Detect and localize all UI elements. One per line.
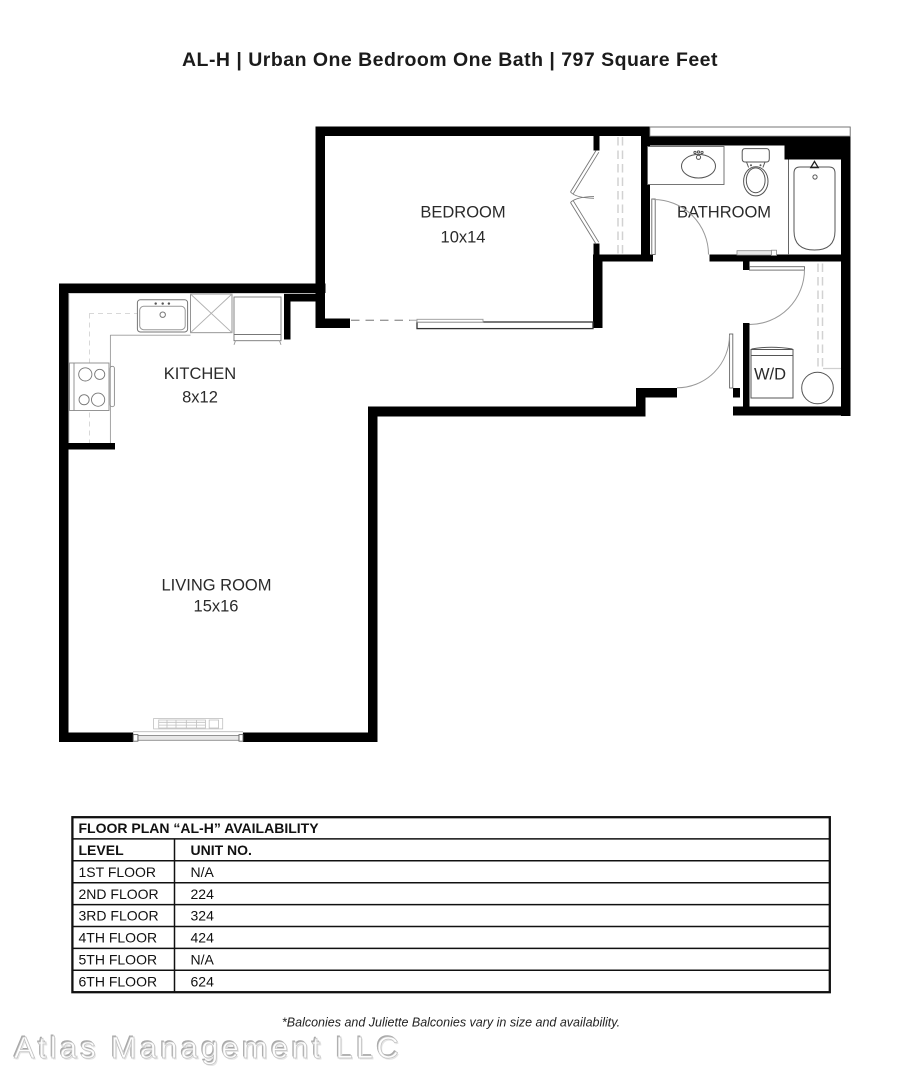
svg-text:2ND FLOOR: 2ND FLOOR (79, 886, 159, 902)
svg-text:*Balconies and Juliette Balcon: *Balconies and Juliette Balconies vary i… (282, 1016, 620, 1030)
svg-text:BATHROOM: BATHROOM (677, 204, 771, 222)
svg-text:FLOOR PLAN “AL-H” AVAILABILITY: FLOOR PLAN “AL-H” AVAILABILITY (79, 820, 320, 836)
svg-text:LEVEL: LEVEL (79, 842, 125, 858)
svg-text:624: 624 (191, 973, 215, 989)
svg-text:AL-H | Urban One Bedroom One B: AL-H | Urban One Bedroom One Bath | 797 … (182, 49, 718, 71)
svg-text:1ST FLOOR: 1ST FLOOR (79, 864, 157, 880)
svg-text:224: 224 (191, 886, 215, 902)
svg-text:KITCHEN: KITCHEN (164, 365, 236, 383)
svg-text:Atlas Management LLC: Atlas Management LLC (14, 1030, 402, 1065)
svg-text:5TH FLOOR: 5TH FLOOR (79, 952, 158, 968)
svg-text:LIVING ROOM: LIVING ROOM (161, 577, 271, 595)
svg-text:6TH FLOOR: 6TH FLOOR (79, 973, 158, 989)
svg-text:4TH FLOOR: 4TH FLOOR (79, 930, 158, 946)
svg-text:W/D: W/D (754, 366, 786, 384)
svg-text:BEDROOM: BEDROOM (420, 204, 505, 222)
svg-text:324: 324 (191, 908, 215, 924)
svg-text:N/A: N/A (191, 952, 215, 968)
svg-text:15x16: 15x16 (194, 598, 239, 616)
svg-text:8x12: 8x12 (182, 389, 218, 407)
svg-text:N/A: N/A (191, 864, 215, 880)
svg-text:UNIT NO.: UNIT NO. (191, 842, 252, 858)
svg-text:10x14: 10x14 (441, 229, 486, 247)
svg-text:424: 424 (191, 930, 215, 946)
svg-text:3RD FLOOR: 3RD FLOOR (79, 908, 159, 924)
